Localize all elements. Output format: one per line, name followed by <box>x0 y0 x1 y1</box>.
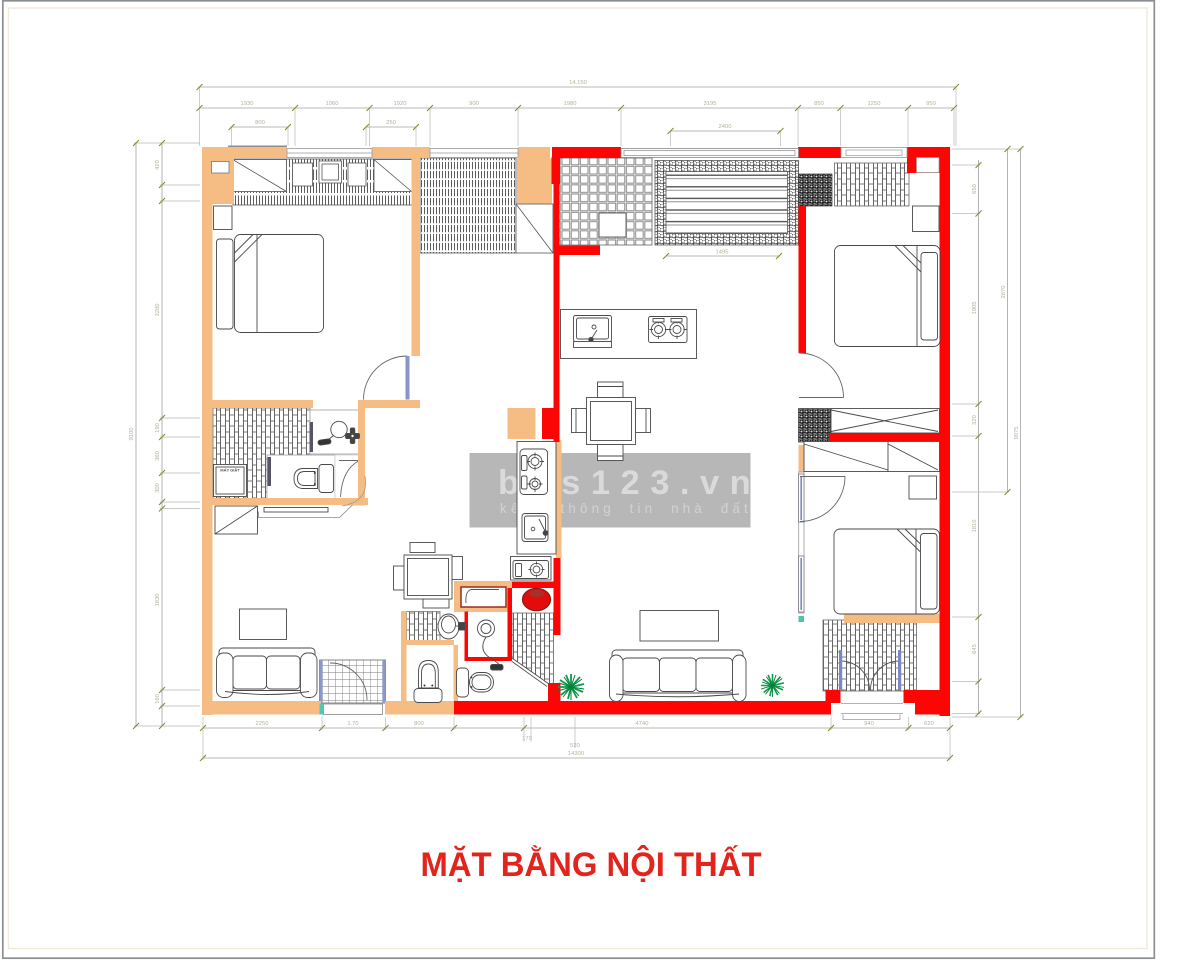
svg-text:14300: 14300 <box>568 751 584 757</box>
svg-text:170: 170 <box>522 736 532 742</box>
svg-text:4740: 4740 <box>636 721 649 727</box>
svg-text:620: 620 <box>924 721 934 727</box>
svg-text:14.150: 14.150 <box>569 80 587 86</box>
svg-text:1920: 1920 <box>394 101 407 107</box>
svg-text:9100: 9100 <box>129 428 135 441</box>
svg-text:MÁY GIẶT: MÁY GIẶT <box>220 468 240 473</box>
svg-text:160: 160 <box>155 694 161 704</box>
svg-text:950: 950 <box>926 101 936 107</box>
svg-text:1.70: 1.70 <box>347 721 358 727</box>
svg-text:9075: 9075 <box>1014 427 1020 440</box>
svg-text:3195: 3195 <box>704 101 717 107</box>
svg-text:190: 190 <box>155 423 161 433</box>
svg-text:1060: 1060 <box>326 101 339 107</box>
svg-text:250: 250 <box>386 120 396 126</box>
svg-text:420: 420 <box>155 160 161 170</box>
svg-text:2870: 2870 <box>1001 286 1007 299</box>
svg-text:1495: 1495 <box>716 250 729 256</box>
svg-text:650: 650 <box>972 184 978 194</box>
svg-text:800: 800 <box>255 120 265 126</box>
svg-text:300: 300 <box>155 483 161 493</box>
svg-text:645: 645 <box>972 644 978 654</box>
svg-text:1930: 1930 <box>241 101 254 107</box>
svg-text:2400: 2400 <box>719 124 732 130</box>
svg-text:800: 800 <box>414 721 424 727</box>
svg-text:1810: 1810 <box>972 520 978 533</box>
svg-text:1905: 1905 <box>972 302 978 315</box>
svg-text:360: 360 <box>155 451 161 461</box>
svg-text:1830: 1830 <box>155 594 161 607</box>
svg-text:1980: 1980 <box>564 101 577 107</box>
svg-text:850: 850 <box>814 101 824 107</box>
svg-text:520: 520 <box>570 743 580 749</box>
svg-text:2250: 2250 <box>256 721 269 727</box>
svg-text:1250: 1250 <box>868 101 881 107</box>
svg-text:MẶT BẰNG NỘI THẤT: MẶT BẰNG NỘI THẤT <box>421 845 762 884</box>
svg-text:320: 320 <box>972 415 978 425</box>
svg-text:940: 940 <box>864 721 874 727</box>
svg-text:900: 900 <box>469 101 479 107</box>
svg-text:3280: 3280 <box>155 304 161 317</box>
